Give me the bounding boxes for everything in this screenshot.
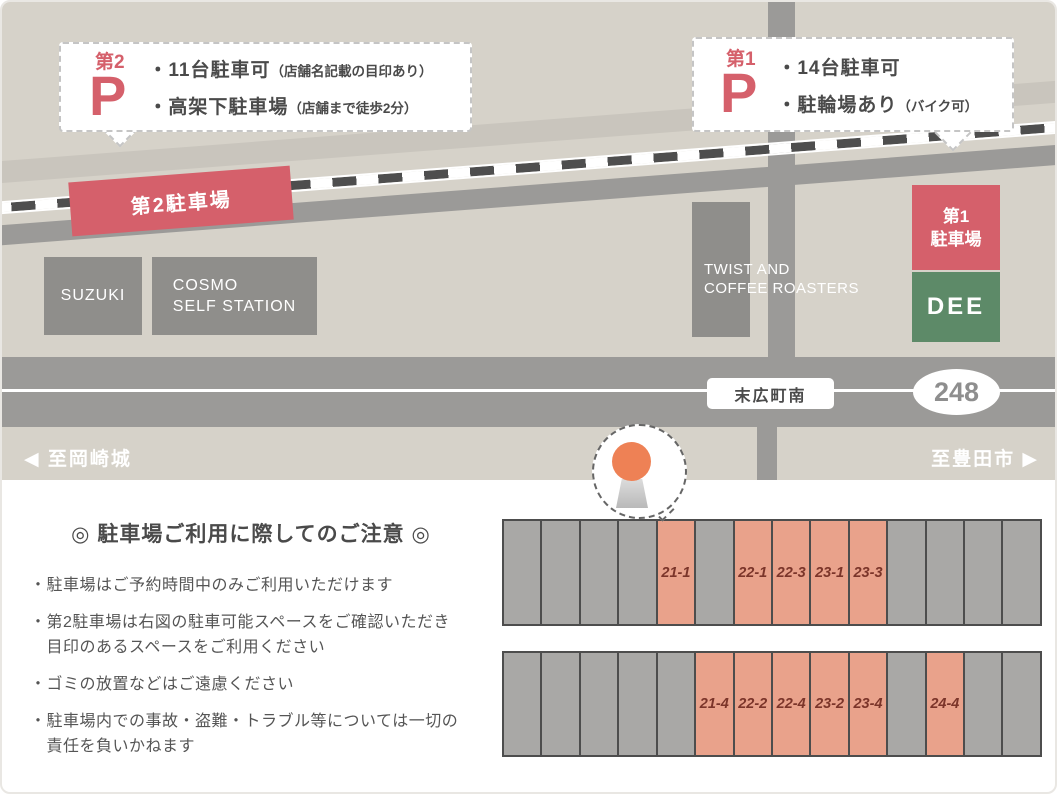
- callout-p1-line-1-main: ・14台駐車可: [777, 58, 900, 79]
- road-center-line: [2, 389, 1057, 392]
- parking-space-23-2: 23-2: [811, 653, 849, 755]
- callout-p2-line-2: ・高架下駐車場（店舗まで徒歩2分）: [148, 92, 432, 119]
- parking-space-label: 24-4: [930, 696, 959, 712]
- parking-space: [965, 653, 1003, 755]
- callout-p2-lines: ・11台駐車可（店舗名記載の目印あり） ・高架下駐車場（店舗まで徒歩2分）: [148, 55, 432, 119]
- parking-diagram-row-2: 21-422-222-423-223-424-4: [502, 651, 1042, 757]
- callout-p1-line-2: ・駐輪場あり（バイク可）: [777, 90, 978, 117]
- parking-space-label: 21-4: [700, 696, 729, 712]
- building-suzuki-label: SUZUKI: [61, 287, 126, 305]
- building-twist-label: TWIST AND COFFEE ROASTERS: [704, 260, 864, 298]
- parking-space-label: 23-3: [853, 565, 882, 581]
- callout-p2-line-1-note: （店舗名記載の目印あり）: [270, 64, 432, 79]
- parking-guide-page: 第2駐車場 SUZUKI COSMO SELF STATION TWIST AN…: [0, 0, 1057, 794]
- parking-1-mark: 第1 P: [720, 50, 757, 119]
- building-suzuki: SUZUKI: [44, 257, 142, 335]
- parking-space-label: 23-1: [815, 565, 844, 581]
- parking-space-23-1: 23-1: [811, 521, 849, 624]
- notice-list: ・駐車場はご予約時間中のみご利用いただけます ・第2駐車場は右図の駐車可能スペー…: [30, 573, 495, 771]
- intersection-sign: 末広町南: [707, 378, 834, 409]
- building-cosmo: COSMO SELF STATION: [152, 257, 317, 335]
- parking-space-22-2: 22-2: [735, 653, 773, 755]
- notice-item: ・駐車場はご予約時間中のみご利用いただけます: [30, 573, 495, 598]
- route-number-badge: 248: [913, 369, 1000, 415]
- parking-space-23-3: 23-3: [850, 521, 888, 624]
- notice-title: ◎ 駐車場ご利用に際してのご注意 ◎: [30, 518, 472, 548]
- parking-space: [965, 521, 1003, 624]
- parking-diagram-row-1: 21-122-122-323-123-3: [502, 519, 1042, 626]
- parking-space-label: 22-4: [777, 696, 806, 712]
- callout-p1-line-2-main: ・駐輪場あり: [777, 95, 897, 116]
- parking-p-icon: P: [720, 67, 757, 119]
- building-dee-label: DEE: [927, 293, 985, 321]
- parking-space: [504, 653, 542, 755]
- parking-space: [888, 521, 926, 624]
- callout-parking-2: 第2 P ・11台駐車可（店舗名記載の目印あり） ・高架下駐車場（店舗まで徒歩2…: [59, 42, 472, 132]
- route-number-label: 248: [934, 377, 979, 408]
- parking-space-21-4: 21-4: [696, 653, 734, 755]
- parking-space-label: 23-4: [853, 696, 882, 712]
- callout-p1-line-2-note: （バイク可）: [897, 99, 978, 114]
- parking-space: [927, 521, 965, 624]
- vertical-road-lower: [757, 427, 777, 480]
- parking-lot-1-area: 第1 駐車場: [912, 185, 1000, 270]
- parking-space-label: 22-2: [738, 696, 767, 712]
- parking-space-22-1: 22-1: [735, 521, 773, 624]
- callout-p1-line-1: ・14台駐車可: [777, 53, 978, 80]
- parking-space-23-4: 23-4: [850, 653, 888, 755]
- building-cosmo-label: COSMO SELF STATION: [173, 275, 296, 317]
- callout-p2-line-1: ・11台駐車可（店舗名記載の目印あり）: [148, 55, 432, 82]
- parking-space: [619, 521, 657, 624]
- notice-item: ・第2駐車場は右図の駐車可能スペースをご確認いただき 目印のあるスペースをご利用…: [30, 610, 495, 660]
- notice-item: ・駐車場内での事故・盗難・トラブル等については一切の 責任を負いかねます: [30, 709, 495, 759]
- callout-parking-1: 第1 P ・14台駐車可 ・駐輪場あり（バイク可）: [692, 37, 1014, 132]
- callout-p2-line-1-main: ・11台駐車可: [148, 60, 270, 81]
- parking-space: [1003, 653, 1039, 755]
- parking-space-24-4: 24-4: [927, 653, 965, 755]
- parking-space: [696, 521, 734, 624]
- parking-space-label: 22-1: [738, 565, 767, 581]
- building-dee: DEE: [912, 272, 1000, 342]
- parking-space-label: 23-2: [815, 696, 844, 712]
- route-248-road: [2, 357, 1057, 427]
- direction-toyota-city: 至豊田市 ▶: [931, 444, 1039, 471]
- parking-space-label: 22-3: [777, 565, 806, 581]
- callout-p2-line-2-main: ・高架下駐車場: [148, 97, 288, 118]
- parking-space: [581, 653, 619, 755]
- parking-space: [504, 521, 542, 624]
- parking-space: [888, 653, 926, 755]
- notice-item: ・ゴミの放置などはご遠慮ください: [30, 672, 495, 697]
- parking-space: [619, 653, 657, 755]
- intersection-sign-label: 末広町南: [734, 382, 806, 406]
- direction-okazaki-castle: ◀ 至岡崎城: [24, 444, 132, 471]
- parking-space-label: 21-1: [661, 565, 690, 581]
- parking-lot-1-label: 第1 駐車場: [931, 205, 982, 251]
- parking-space: [581, 521, 619, 624]
- callout-p2-line-2-note: （店舗まで徒歩2分）: [288, 101, 417, 116]
- parking-space: [1003, 521, 1039, 624]
- parking-lot-2-label: 第2駐車場: [129, 183, 232, 220]
- parking-space-22-4: 22-4: [773, 653, 811, 755]
- parking-space: [658, 653, 696, 755]
- parking-space-21-1: 21-1: [658, 521, 696, 624]
- parking-space-22-3: 22-3: [773, 521, 811, 624]
- parking-2-mark: 第2 P: [89, 53, 126, 122]
- parking-space: [542, 521, 580, 624]
- access-map: 第2駐車場 SUZUKI COSMO SELF STATION TWIST AN…: [2, 2, 1057, 480]
- parking-space: [542, 653, 580, 755]
- shop-sign-logo-icon: [612, 442, 651, 481]
- parking-p-icon: P: [89, 70, 126, 122]
- callout-p1-lines: ・14台駐車可 ・駐輪場あり（バイク可）: [777, 53, 978, 117]
